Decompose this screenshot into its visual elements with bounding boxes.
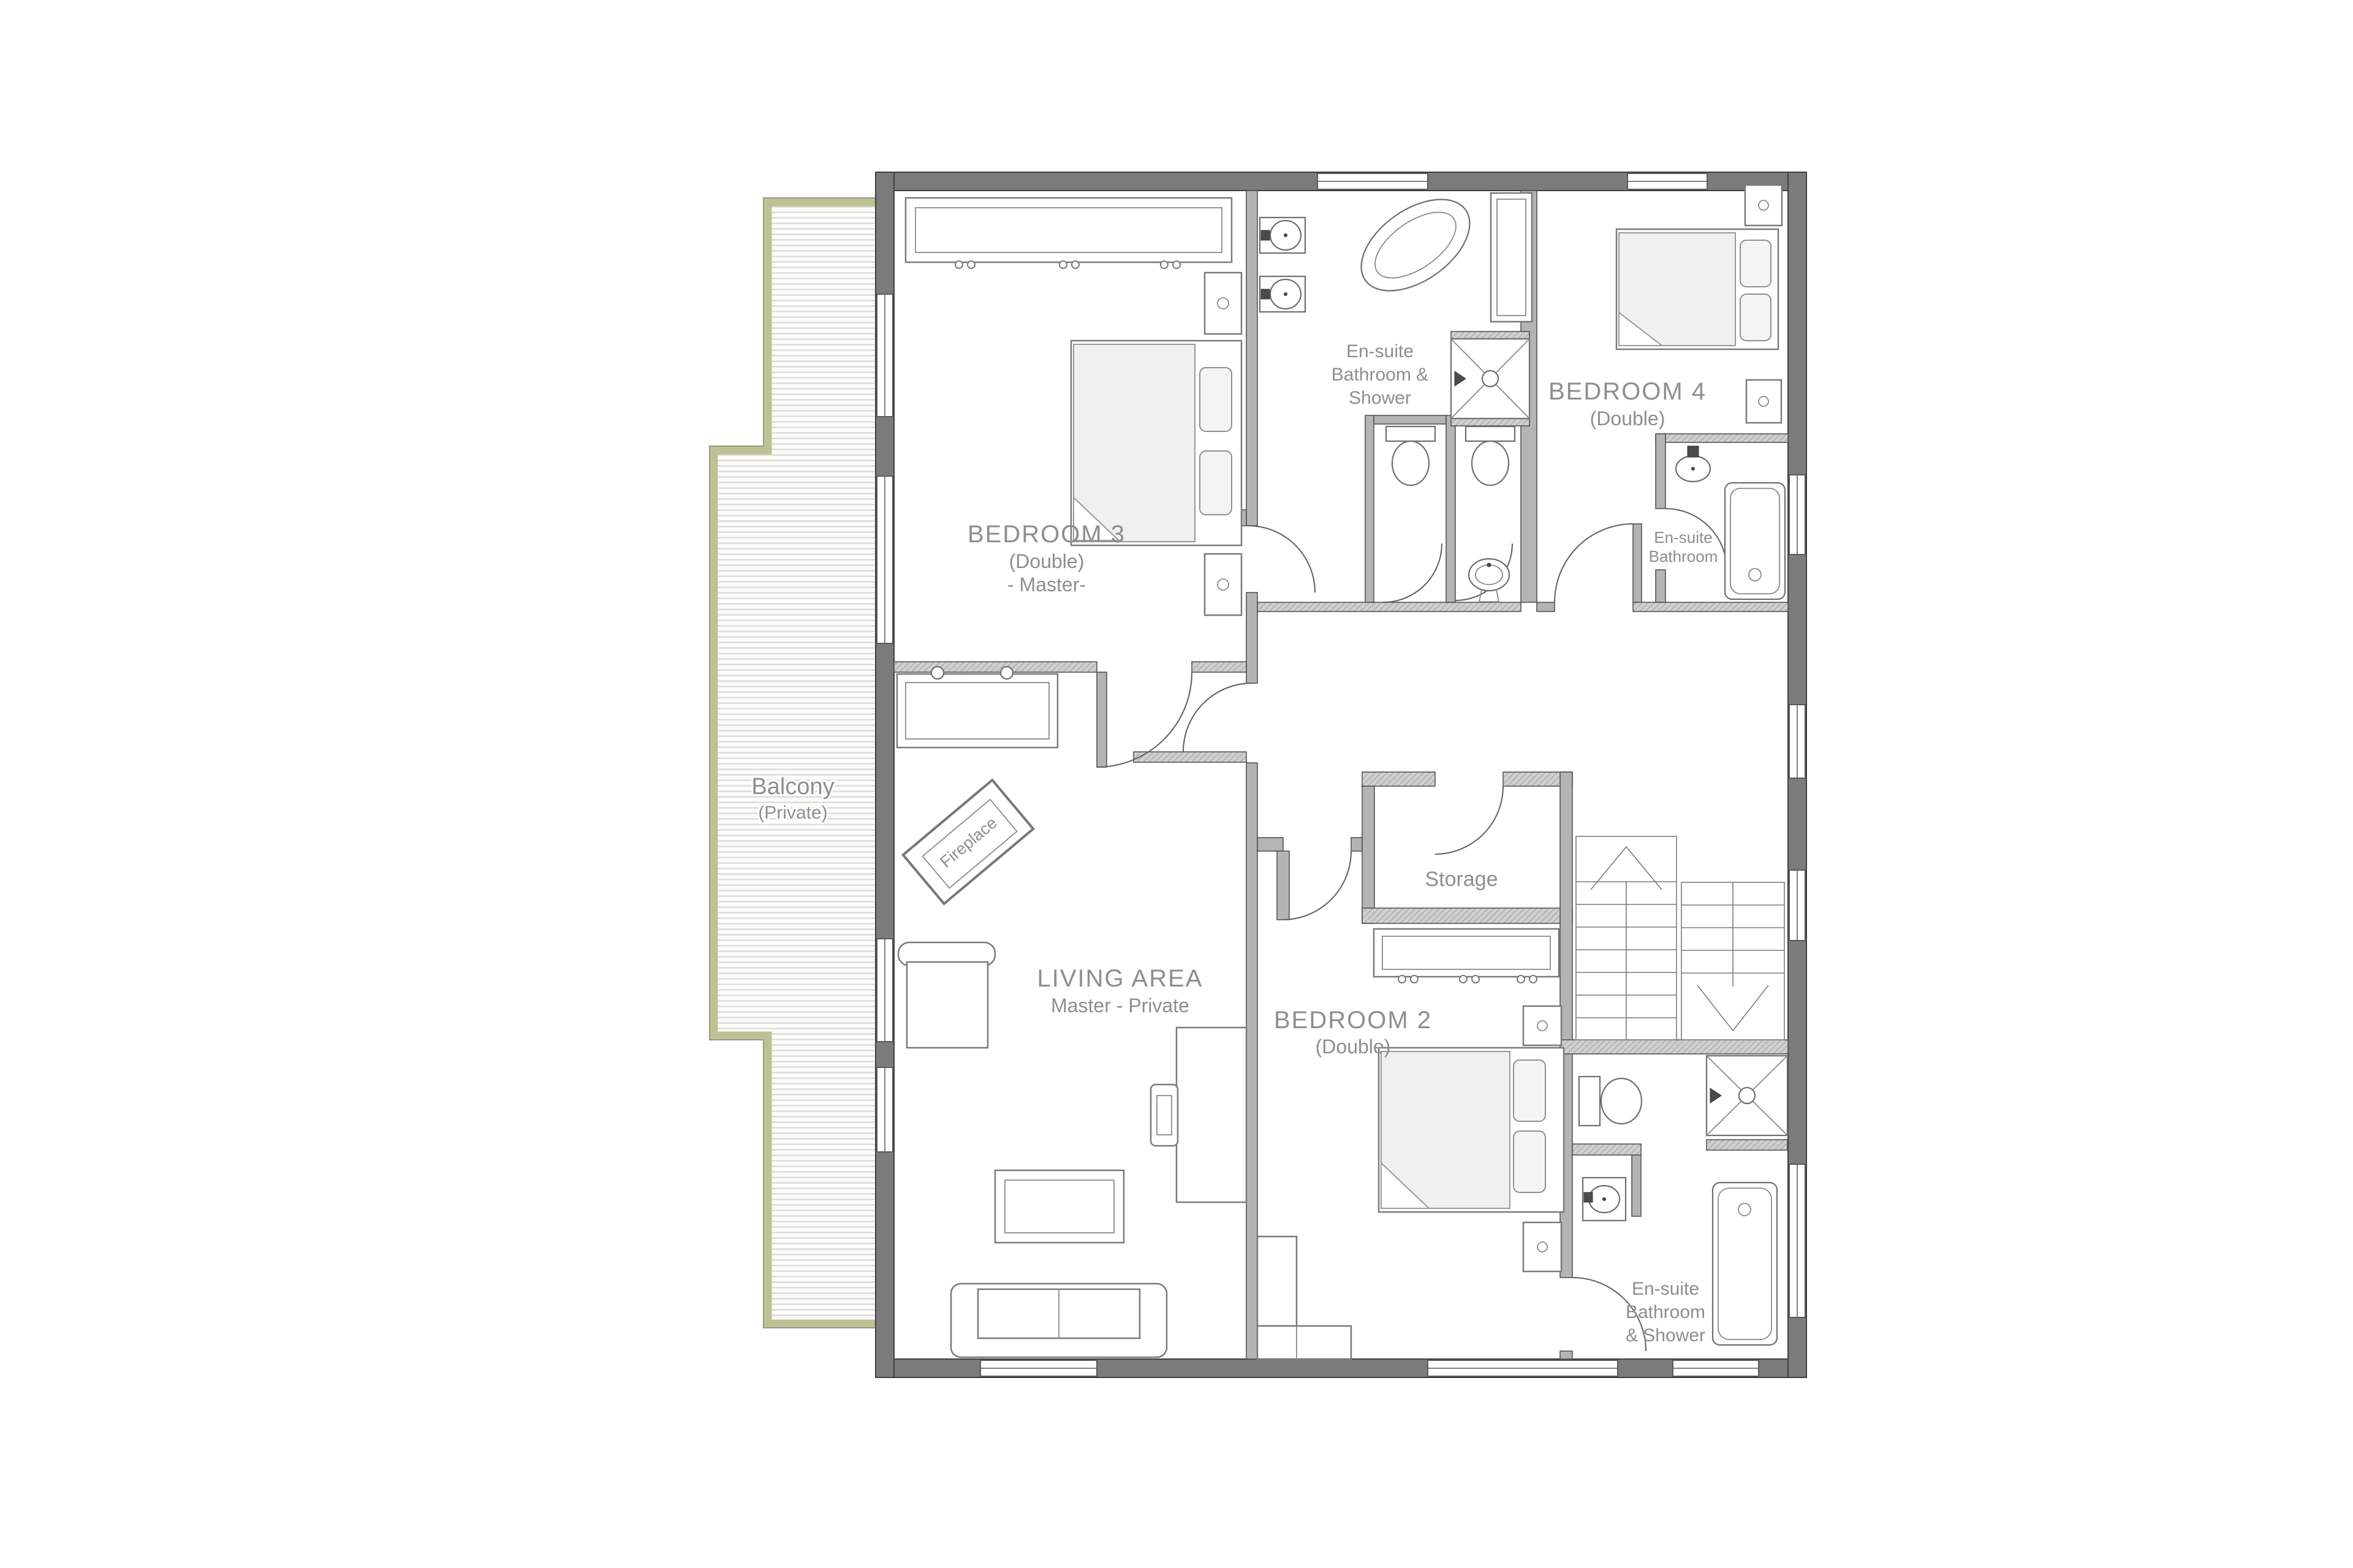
desk-icon — [1176, 1028, 1246, 1202]
bed-icon-bedroom3 — [1071, 341, 1241, 545]
wall-wc-a-top — [1374, 415, 1446, 424]
master-ensuite-label3: Shower — [1349, 388, 1411, 408]
wall-wc-a-left — [1365, 415, 1374, 602]
window — [1317, 173, 1428, 189]
wall-wc2-divider — [1572, 1144, 1641, 1155]
wall-bed3-south-jamb — [1192, 662, 1246, 672]
bed-icon-bedroom4 — [1616, 229, 1778, 349]
window — [980, 1360, 1097, 1376]
window — [1673, 1360, 1759, 1376]
wall-bed4-ensuite-left-b — [1656, 570, 1665, 602]
steps-icon — [1257, 1237, 1351, 1359]
wall-bed4-ensuite-south — [1633, 602, 1788, 612]
bed2-ensuite-label3: & Shower — [1626, 1325, 1705, 1346]
window — [877, 1067, 893, 1152]
wall-v1-upper — [1246, 191, 1257, 526]
bathtub-icon — [1713, 1183, 1777, 1345]
living-area-label: LIVING AREA — [1037, 965, 1203, 992]
window — [877, 294, 893, 417]
balcony: Balcony (Private) — [710, 198, 882, 1328]
wall-nook-south — [1134, 752, 1246, 762]
nightstand-icon — [1205, 554, 1241, 615]
wall-bed2-entry-b — [1351, 838, 1362, 851]
nightstand-icon — [1746, 380, 1781, 423]
nightstand-icon — [1523, 1006, 1561, 1045]
bed2-ensuite-label1: En-suite — [1632, 1279, 1699, 1299]
wall-storage-bottom — [1362, 908, 1572, 923]
wall-wc-b-left — [1446, 415, 1455, 602]
shower-icon — [1451, 339, 1529, 419]
door-arc-storage — [1435, 786, 1503, 854]
door-arc-living — [1183, 683, 1252, 752]
door-leaf-bedroom2 — [1277, 851, 1289, 920]
bedroom3-note: - Master- — [1007, 574, 1086, 596]
bed4-ensuite-label2: Bathroom — [1649, 547, 1718, 566]
wardrobe-icon — [906, 198, 1232, 268]
room-bedroom2: BEDROOM 2 (Double) — [1257, 1006, 1564, 1359]
door-arc-bedroom4 — [1555, 524, 1633, 602]
bed-icon-bedroom2 — [1379, 1048, 1564, 1212]
nightstand-icon — [1523, 1222, 1561, 1271]
bedroom3-label: BEDROOM 3 — [968, 521, 1126, 548]
room-storage: Storage — [1374, 868, 1559, 983]
door-arc-bedroom2 — [1283, 851, 1351, 920]
balcony-sublabel: (Private) — [758, 803, 827, 823]
bathtub-icon — [1725, 483, 1785, 599]
room-living-area: Fireplace LIVING AREA Master - Private — [897, 667, 1246, 1357]
window — [1428, 1360, 1618, 1376]
bedroom2-type: (Double) — [1316, 1036, 1391, 1058]
shower-icon — [1707, 1056, 1787, 1135]
sideboard-icon — [897, 667, 1058, 748]
shower2-screen-bottom — [1707, 1140, 1787, 1150]
master-ensuite-label1: En-suite — [1346, 341, 1414, 362]
floor-plan: Balcony (Private) — [0, 0, 2353, 1568]
sink-icon — [1260, 276, 1305, 312]
bed4-ensuite-label1: En-suite — [1654, 528, 1712, 547]
bedroom3-type: (Double) — [1009, 550, 1085, 572]
pedestal-sink-icon — [1469, 559, 1509, 602]
wall-v1-mid — [1246, 593, 1257, 683]
wall-stairs-south — [1560, 1040, 1788, 1054]
door-arc-bedroom3 — [1248, 526, 1315, 593]
bed2-ensuite-label2: Bathroom — [1626, 1302, 1705, 1322]
nightstand-icon — [1205, 273, 1241, 334]
shower-screen-top — [1451, 331, 1529, 339]
desk-chair-icon — [1151, 1085, 1178, 1146]
toilet-icon — [1579, 1077, 1642, 1126]
wall-storage-left — [1362, 786, 1374, 923]
wall-corridor-top — [1257, 602, 1521, 612]
bathtub-oval-icon — [1345, 181, 1486, 309]
floor-plan-canvas: Balcony (Private) — [0, 0, 2353, 1568]
wall-bed4-ensuite-left-a — [1656, 434, 1665, 509]
balcony-label: Balcony — [751, 774, 834, 800]
window — [1789, 870, 1805, 941]
door-leaf-bedroom4 — [1633, 524, 1642, 602]
room-bedroom4-ensuite: En-suite Bathroom — [1649, 446, 1785, 599]
wall-bed3-south — [894, 662, 1097, 672]
door-leaf-master — [1097, 672, 1107, 767]
stairs-icon — [1576, 836, 1784, 1040]
master-ensuite-label2: Bathroom & — [1332, 365, 1428, 385]
window — [877, 939, 893, 1042]
wall-wc2-stub — [1632, 1155, 1641, 1216]
room-bedroom4: BEDROOM 4 (Double) — [1548, 185, 1782, 430]
sink-icon — [1260, 218, 1305, 253]
fireplace-icon: Fireplace — [903, 780, 1033, 904]
toilet-icon — [1386, 426, 1435, 485]
living-area-sublabel: Master - Private — [1051, 994, 1189, 1017]
window — [1789, 705, 1805, 778]
wall-bed4-door-jamb — [1537, 602, 1555, 612]
window — [1789, 475, 1805, 555]
bedroom2-label: BEDROOM 2 — [1274, 1007, 1432, 1034]
toilet-icon — [1466, 426, 1515, 485]
sofa-icon — [951, 1284, 1167, 1357]
room-master-ensuite: En-suite Bathroom & Shower — [1260, 181, 1532, 602]
wall-storage-top-left — [1362, 772, 1435, 786]
balcony-deck — [714, 202, 882, 1324]
storage-label: Storage — [1425, 868, 1498, 891]
window — [877, 476, 893, 643]
nightstand-icon — [1745, 185, 1782, 225]
armchair-icon — [898, 942, 995, 1048]
shower-screen-bottom — [1451, 419, 1529, 426]
door-arc-wc-a — [1383, 543, 1442, 602]
coffee-table-icon — [995, 1170, 1124, 1243]
wall-v3-stub — [1560, 1351, 1572, 1359]
sink-icon — [1676, 446, 1710, 482]
dresser-icon — [1374, 929, 1559, 983]
sink-icon — [1583, 1178, 1626, 1221]
wall-bed4-ensuite-north — [1656, 434, 1788, 442]
cabinet-icon — [1491, 193, 1532, 322]
bedroom4-label: BEDROOM 4 — [1548, 378, 1707, 405]
room-bedroom3: BEDROOM 3 (Double) - Master- — [906, 198, 1241, 615]
wall-bed2-entry-a — [1257, 838, 1283, 851]
wall-v1-lower — [1246, 763, 1257, 1359]
window — [1789, 1164, 1805, 1317]
window — [1627, 173, 1707, 189]
bedroom4-type: (Double) — [1590, 407, 1665, 430]
room-bedroom2-ensuite: En-suite Bathroom & Shower — [1579, 1056, 1787, 1346]
